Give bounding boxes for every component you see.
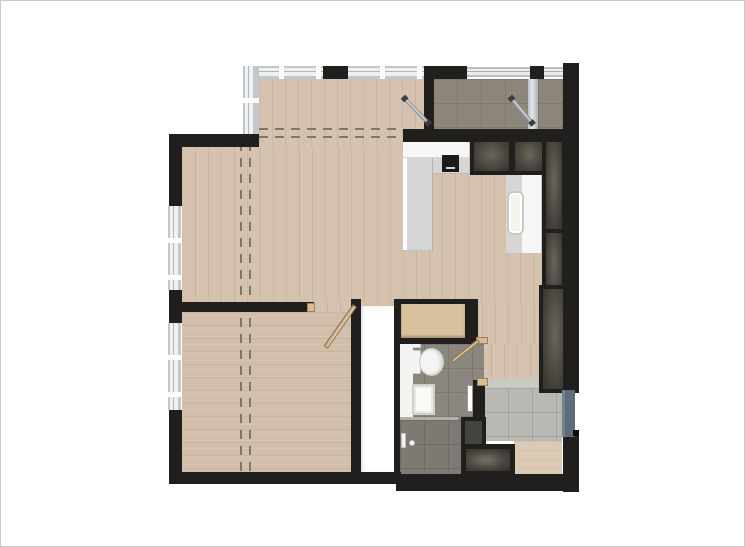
wall-bathroom-right [473,380,485,420]
window-left-1 [168,206,181,290]
bathroom-door-jamb-bottom [477,378,488,386]
ceiling-dashed-line-h1 [259,128,403,130]
tan-cabinet [398,299,478,341]
bedroom-floor [182,312,351,472]
cooktop [442,155,459,172]
kitchen-sink [507,191,524,235]
window-corner-vertical [243,66,259,134]
balcony-railing-2 [544,67,563,77]
closet-top-1 [470,137,513,175]
shower-fixture [401,433,406,448]
genkan-mat [514,441,562,474]
bedroom-door-jamb [307,303,315,312]
wall-balcony-bottom [403,129,579,142]
shower-floor [400,420,463,477]
wall-left-b [169,290,182,323]
wall-bottom-b [396,474,579,491]
wall-right-b [563,435,579,492]
wall-pier-top-2 [424,66,467,79]
sink-counter-white [522,175,541,253]
wall-topleft-step [169,134,259,147]
wall-pier-top-1 [323,66,348,79]
vanity-sink [412,384,435,415]
floor-plan [0,0,745,547]
appliance-box [461,444,515,476]
wall-pier-top-3 [530,66,544,79]
shower-knob [409,440,415,446]
wall-left-a [169,147,182,206]
wall-bedroom-divider [182,302,314,312]
wall-hall-right [394,299,400,473]
wall-bottom-a [169,472,401,484]
window-left-2 [168,323,181,410]
ceiling-dashed-line-h2 [259,136,403,138]
entry-floor [484,388,562,441]
window-top-2 [348,66,424,79]
kitchen-counter-back [403,141,469,158]
wall-right-a [563,63,579,393]
bathroom-divider-line [400,417,458,420]
wall-hall-left [351,299,361,473]
toilet-bowl [419,348,444,376]
living-room-floor [182,147,403,302]
hall-closet-floor [361,306,394,473]
entry-door-handle [573,430,579,436]
balcony-railing-1 [467,67,530,77]
kitchen-counter-leg [403,158,433,251]
balcony-side-floor [538,79,563,129]
corridor-floor-lower [478,344,541,379]
